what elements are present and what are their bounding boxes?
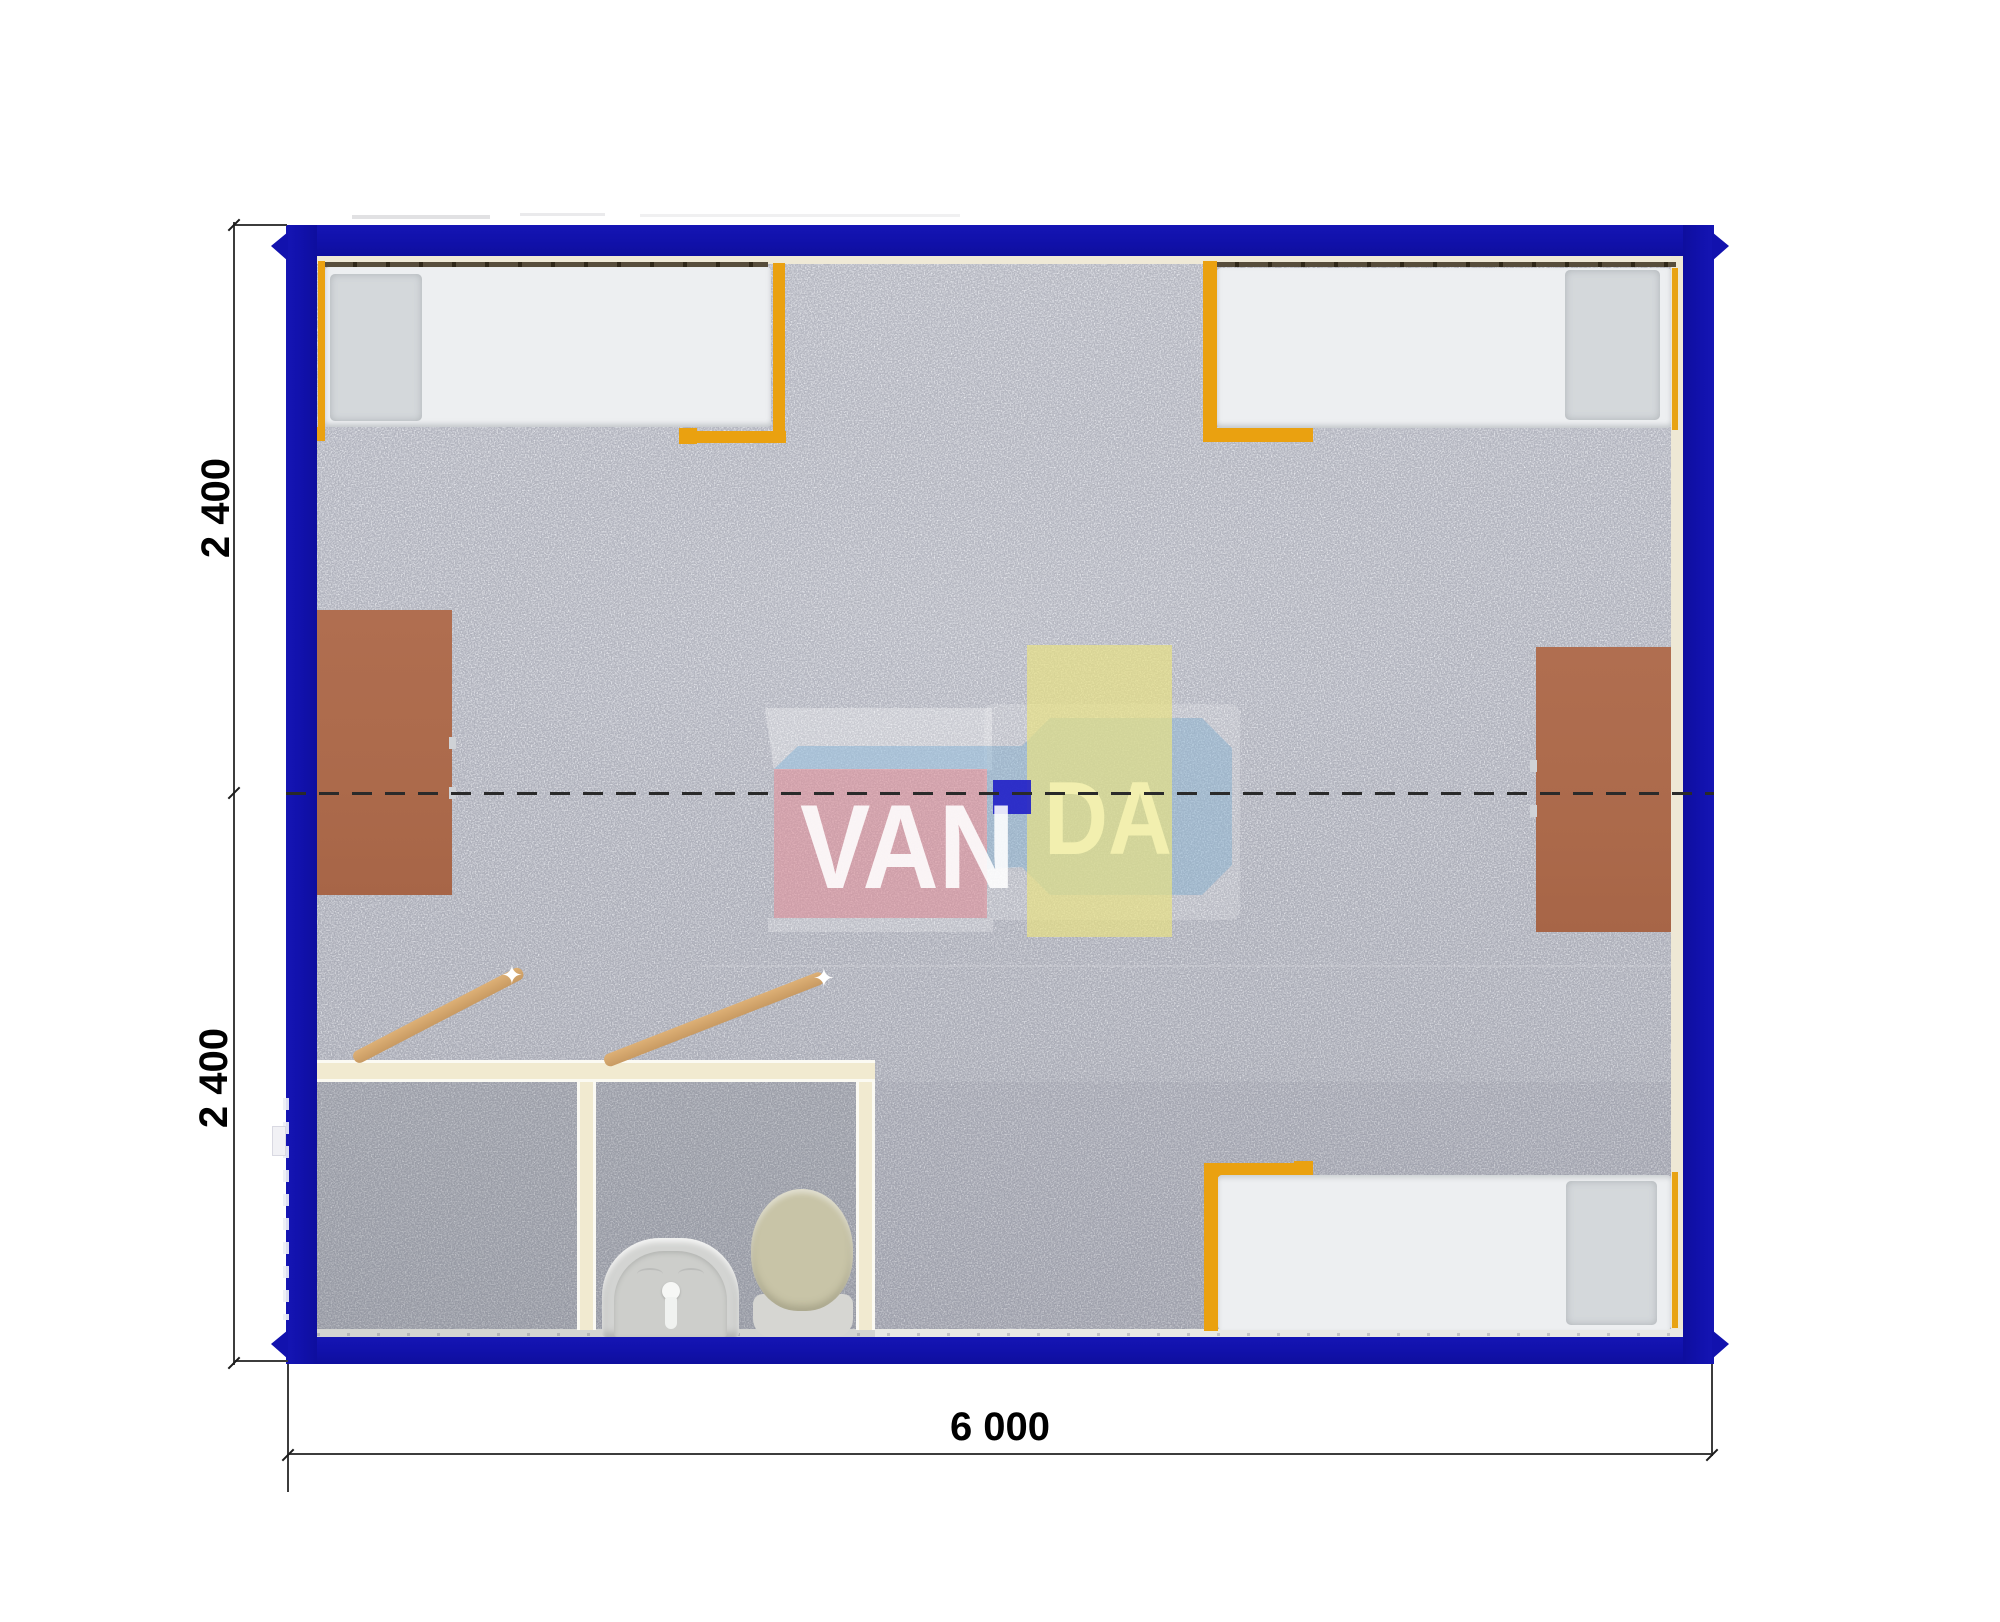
svg-text:DA: DA: [1044, 761, 1172, 877]
svg-text:VAN: VAN: [800, 780, 1015, 914]
